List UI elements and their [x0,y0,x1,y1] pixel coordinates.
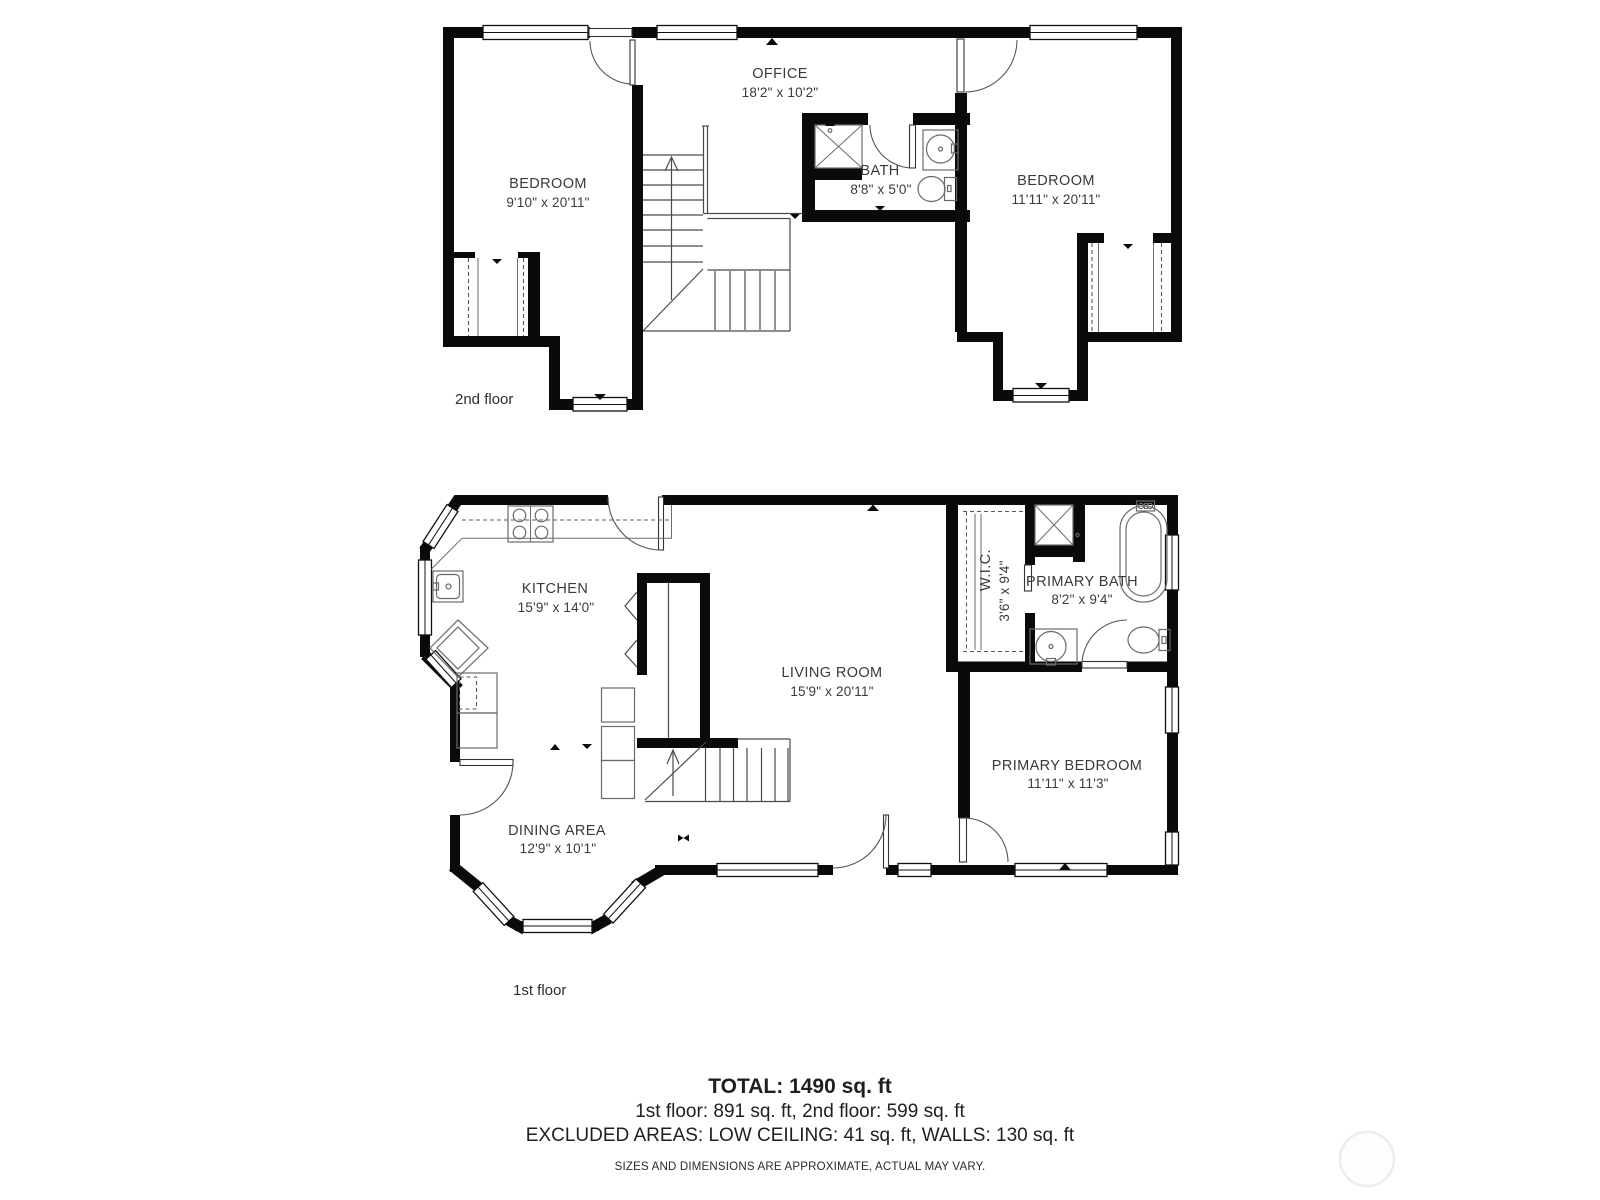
window [657,26,737,40]
room-label-living-room: LIVING ROOM [781,665,882,681]
toilet-icon [918,177,957,202]
room-dims-kitchen: 15'9" x 14'0" [518,600,595,615]
second-floor-plan: OFFICE 18'2" x 10'2" BEDROOM 9'10" x 20'… [443,26,1182,412]
door-swing-primary-bath [1082,620,1127,668]
window [523,920,592,933]
room-dims-bath: 8'8" x 5'0" [850,182,911,197]
room-label-bedroom-left: BEDROOM [509,176,587,192]
kitchen-sink-icon [433,571,463,602]
summary-block: TOTAL: 1490 sq. ft 1st floor: 891 sq. ft… [526,1075,1075,1173]
watermark-circle [1340,1132,1394,1186]
window [1030,26,1137,40]
door-swing-dining [460,760,513,816]
sink-icon [923,130,958,170]
summary-total: TOTAL: 1490 sq. ft [708,1075,892,1098]
room-dims-living-room: 15'9" x 20'11" [790,684,873,699]
sink-icon [1030,629,1077,665]
floor-plan-drawing: OFFICE 18'2" x 10'2" BEDROOM 9'10" x 20'… [0,0,1600,1200]
closet-right-interior [1092,243,1162,332]
room-dims-bedroom-right: 11'11" x 20'11" [1011,192,1100,207]
closet-left-interior [469,258,524,336]
window [1013,389,1069,403]
floor-label-2nd: 2nd floor [455,391,513,408]
room-label-primary-bedroom: PRIMARY BEDROOM [992,758,1143,774]
window [603,879,645,923]
room-dims-primary-bedroom: 11'11" x 11'3" [1027,776,1108,791]
room-label-bath: BATH [860,163,899,179]
room-label-kitchen: KITCHEN [522,581,588,597]
staircase-upper [643,126,802,331]
kitchen-fixtures [430,505,672,799]
door-swing-bath [870,125,916,168]
window [419,560,432,635]
window [898,864,931,877]
room-dims-wic: 3'6" x 9'4" [997,560,1012,621]
first-floor-plan: KITCHEN 15'9" x 14'0" LIVING ROOM 15'9" … [419,495,1179,999]
floor-plan-page: OFFICE 18'2" x 10'2" BEDROOM 9'10" x 20'… [0,0,1600,1200]
door-swing-bedroom-left [589,29,635,86]
room-dims-dining-area: 12'9" x 10'1" [520,841,597,856]
window [483,26,588,40]
window [426,651,461,688]
room-label-primary-bath: PRIMARY BATH [1026,574,1138,590]
room-dims-bedroom-left: 9'10" x 20'11" [506,195,589,210]
door-swing-living [833,815,889,868]
summary-excluded: EXCLUDED AREAS: LOW CEILING: 41 sq. ft, … [526,1125,1075,1146]
window [1166,832,1179,865]
toilet-icon [1128,627,1170,653]
shower-icon [815,122,862,169]
first-floor-labels: KITCHEN 15'9" x 14'0" LIVING ROOM 15'9" … [508,549,1142,999]
window [717,864,818,877]
room-label-wic: W.I.C. [978,549,994,591]
room-label-office: OFFICE [752,66,808,82]
room-dims-primary-bath: 8'2" x 9'4" [1051,592,1112,607]
room-dims-office: 18'2" x 10'2" [742,85,819,100]
door-swing-entry [608,497,664,550]
room-label-dining-area: DINING AREA [508,823,606,839]
summary-disclaimer: SIZES AND DIMENSIONS ARE APPROXIMATE, AC… [615,1161,986,1173]
stove-icon [508,506,553,542]
kitchen-counter [457,673,497,748]
door-swing-primary-bedroom [960,818,1009,862]
floor-label-1st: 1st floor [513,982,566,999]
window [1166,687,1179,733]
room-label-bedroom-right: BEDROOM [1017,173,1095,189]
kitchen-cabinets [602,688,635,799]
summary-floors: 1st floor: 891 sq. ft, 2nd floor: 599 sq… [635,1101,965,1122]
window [423,505,458,549]
window [473,883,514,926]
door-swing-bedroom-right [957,39,1017,92]
